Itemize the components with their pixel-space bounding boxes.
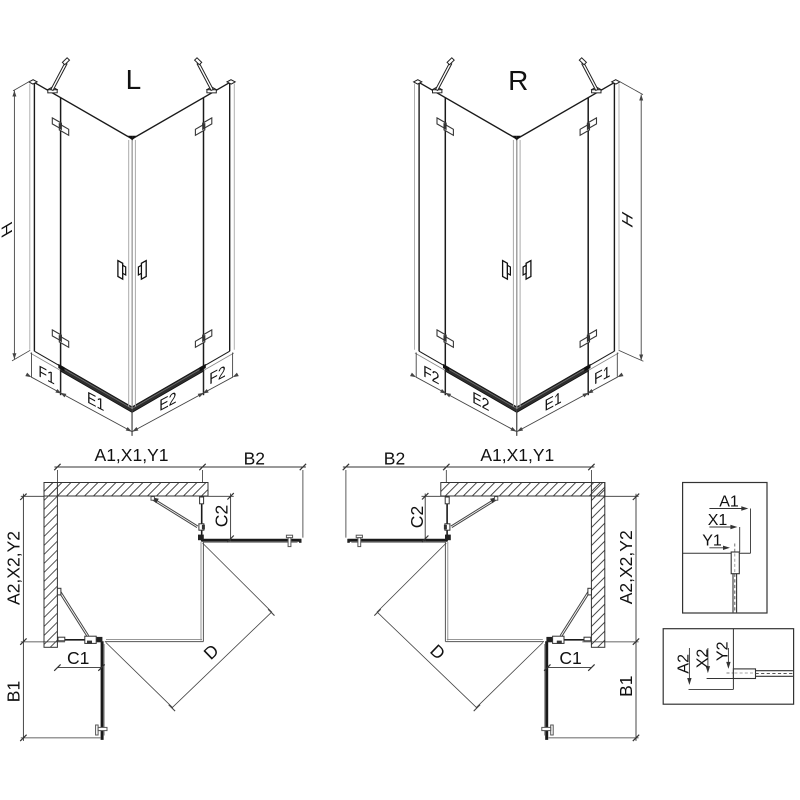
svg-text:A1: A1 (719, 494, 739, 511)
svg-text:Y1: Y1 (702, 533, 722, 550)
svg-text:A2,X2,Y2: A2,X2,Y2 (616, 530, 636, 604)
svg-text:A2: A2 (676, 654, 693, 674)
svg-text:B2: B2 (384, 449, 405, 469)
svg-text:C2: C2 (212, 505, 232, 527)
svg-text:A1,X1,Y1: A1,X1,Y1 (480, 445, 554, 465)
svg-text:R: R (508, 65, 528, 96)
svg-text:B1: B1 (3, 681, 23, 702)
svg-text:C1: C1 (67, 648, 89, 668)
svg-text:A1,X1,Y1: A1,X1,Y1 (95, 445, 169, 465)
svg-text:X1: X1 (708, 512, 728, 529)
svg-text:L: L (126, 64, 142, 95)
svg-text:B1: B1 (616, 675, 636, 696)
svg-text:C2: C2 (407, 506, 427, 528)
svg-text:C1: C1 (559, 648, 581, 668)
svg-text:A2,X2,Y2: A2,X2,Y2 (3, 531, 23, 605)
svg-text:B2: B2 (244, 449, 265, 469)
svg-text:X2: X2 (695, 649, 712, 669)
svg-text:Y2: Y2 (715, 641, 732, 661)
